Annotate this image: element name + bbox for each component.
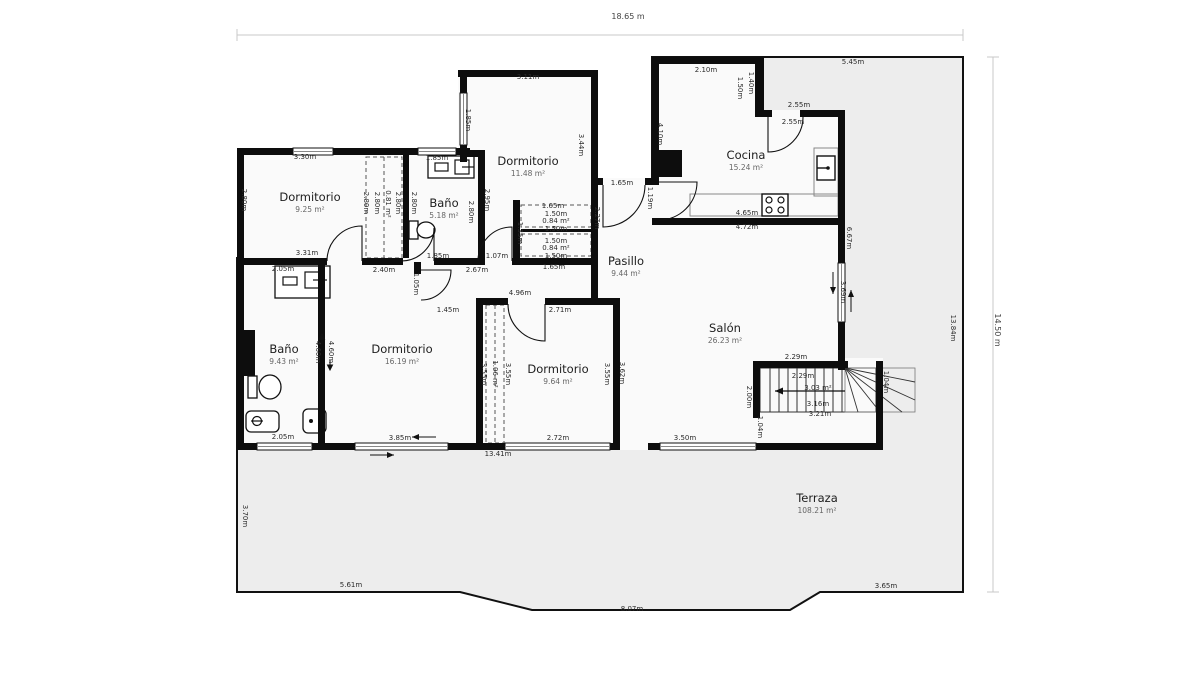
dimension-label: 3.69m [839,281,847,303]
dimension-label: 1.04m [756,416,764,438]
dimension-label: 13.41m [485,450,512,458]
dimension-label: 1.07m [486,252,508,260]
dimension-label: 5.45m [842,58,864,66]
dimension-label: 18.65 m [611,13,644,21]
dimension-label: 3.55m [480,363,488,385]
dimension-label: 0.84 m² [542,217,569,225]
dimension-label: 2.71m [549,306,571,314]
dimension-label: 3.03 m² [804,384,831,392]
window-icon [660,443,756,450]
dimension-label: 2.40m [373,266,395,274]
dimension-label: 2.55m [788,101,810,109]
stove-icon [762,194,788,216]
dimension-label: 1.50m [736,77,744,99]
floor-plan-canvas: Dormitorio9.25 m²Baño5.18 m²Dormitorio11… [0,0,1200,675]
dimension-label: 3.21m [809,410,831,418]
dimension-label: 4.60m [314,341,322,363]
dimension-label: 1.50m [545,225,567,233]
dimension-label: 4.96m [509,289,531,297]
dimension-label: 2.80m [240,189,248,211]
dimension-label: 3.70m [241,505,249,527]
dimension-label: 2.27m [593,207,601,229]
window-icon [257,443,312,450]
dimension-label: 1.06 m² [491,360,499,387]
dimension-label: 2.80m [362,192,370,214]
dimension-label: 8.07m [621,605,643,613]
dimension-label: 2.05m [272,433,294,441]
dimension-label: 2.80m [394,192,402,214]
dimension-label: 0.81 m² [384,190,392,217]
dimension-label: 2.05m [272,265,294,273]
dimension-label: 2.55m [782,118,804,126]
dimension-label: 1.50m [545,252,567,260]
dimension-label: 2.72m [547,434,569,442]
dimension-label: 1.05m [412,273,420,295]
dimension-label: 3.55m [504,363,512,385]
dimension-label: 1.40m [747,72,755,94]
dimension-label: 2.80m [410,192,418,214]
dimension-label: 1.85m [426,154,448,162]
dimension-label: 3.65m [875,582,897,590]
dimension-label: 3.31m [296,249,318,257]
dimension-label: 2.10m [695,66,717,74]
dimension-label: 3.44m [577,134,585,156]
dimension-label: 1.85m [464,109,472,131]
dimension-label: 3.50m [674,434,696,442]
dimension-label: 1.19m [646,187,654,209]
dimension-label: 1.85m [427,252,449,260]
dimension-label: 1.45m [437,306,459,314]
dimension-label: 3.30m [294,153,316,161]
dimension-label: 1.35m [516,222,524,244]
dimension-label: 3.11m [517,73,539,81]
dimension-label: 2.29m [785,353,807,361]
dimension-label: 4.60m [327,341,335,363]
dimension-label: 14.50 m [993,313,1001,346]
dimension-label: 4.10m [656,123,664,145]
dimension-label: 5.61m [340,581,362,589]
dimension-label: 1.65m [542,202,564,210]
dimension-label: 1.04m [882,371,890,393]
dimension-label: 2.80m [373,192,381,214]
dimension-label: 4.65m [736,209,758,217]
floor-plan-drawing [0,0,1200,675]
dimension-label: 4.72m [736,223,758,231]
dimension-label: 1.65m [543,263,565,271]
dimension-label: 3.62m [618,362,626,384]
dimension-label: 3.55m [603,363,611,385]
dimension-label: 3.16m [807,400,829,408]
dimension-label: 1.65m [611,179,633,187]
dimension-label: 0.84 m² [542,244,569,252]
dimension-label: 2.00m [745,386,753,408]
kitchen-sink-icon [817,156,835,180]
dimension-label: 3.85m [389,434,411,442]
dimension-label: 6.67m [845,227,853,249]
dimension-label: 13.84m [949,315,957,342]
window-icon [505,443,610,450]
dimension-label: 2.67m [466,266,488,274]
dimension-label: 2.95m [483,189,491,211]
dimension-label: 2.80m [467,201,475,223]
dimension-label: 2.29m [792,372,814,380]
